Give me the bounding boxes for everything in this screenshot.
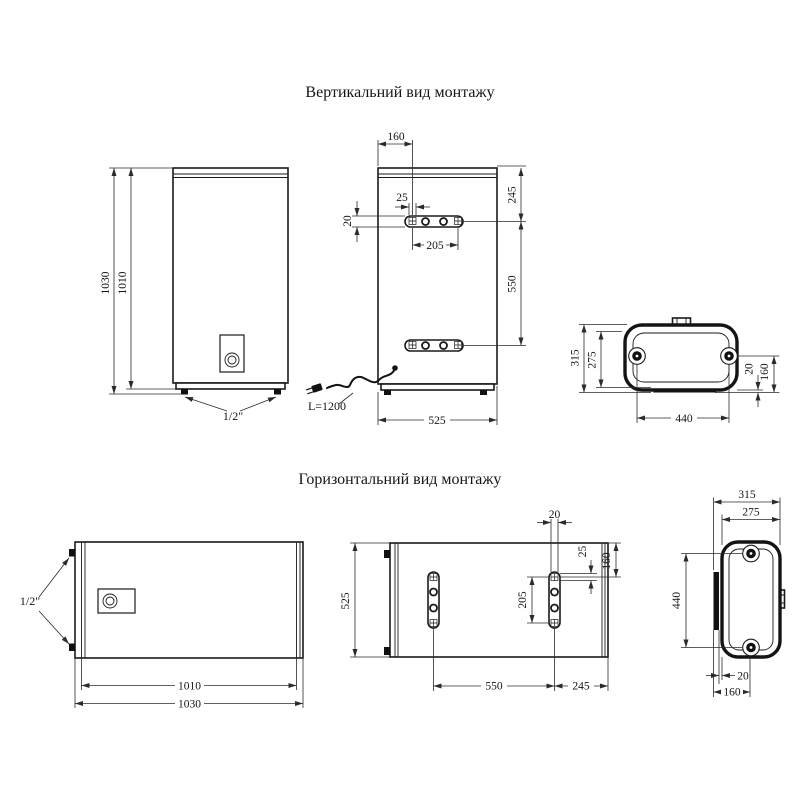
boiler-mounting-drawing: Вертикальний вид монтажу Горизонтальний … (0, 0, 800, 800)
dim-550: 550 (507, 275, 519, 293)
bottom-plate (176, 383, 285, 389)
pipe-nipple-top (69, 549, 75, 557)
dim-160: 160 (759, 363, 771, 381)
dim-315: 315 (570, 349, 582, 367)
left-mounting-bracket (428, 572, 439, 628)
pipe-size-label: 1/2" (223, 409, 243, 423)
tank-body (390, 543, 608, 657)
dim-25: 25 (396, 192, 408, 204)
pipe-size-label: 1/2" (20, 594, 40, 608)
vertical-back-view: L=1200 160 25 20 205 245 (305, 131, 526, 427)
dimension-hole-to-wall: 160 (759, 356, 774, 393)
bottom-plate (381, 384, 494, 390)
dim-160: 160 (723, 687, 741, 699)
horizontal-side-view: 315 275 440 20 160 (671, 489, 785, 699)
plug-icon (305, 383, 322, 395)
upper-mounting-bracket (405, 216, 463, 227)
dim-275: 275 (587, 351, 599, 369)
right-mounting-bracket (549, 572, 560, 628)
dim-1010: 1010 (178, 681, 201, 693)
tank-body (173, 168, 288, 383)
dim-245: 245 (572, 681, 590, 693)
dimension-depth-inner: 275 (722, 507, 780, 546)
vertical-top-view: 315 275 440 20 160 (570, 318, 780, 425)
horizontal-section-title: Горизонтальний вид монтажу (299, 471, 502, 488)
horizontal-front-view: 1/2" 1010 1030 (20, 542, 303, 711)
dim-525: 525 (428, 415, 446, 427)
foot-bottom (384, 647, 390, 655)
dim-1030: 1030 (100, 271, 112, 294)
dimension-height-outer: 1030 (100, 168, 181, 394)
dim-160: 160 (601, 552, 613, 570)
technical-drawing-page: Вертикальний вид монтажу Горизонтальний … (0, 0, 800, 800)
pipe-connection-top (743, 545, 760, 562)
pipe-nipple-left (181, 389, 188, 395)
dim-440: 440 (671, 592, 683, 610)
pipe-size-callout: 1/2" (20, 558, 69, 644)
dim-275: 275 (742, 507, 760, 519)
dim-440: 440 (675, 413, 693, 425)
pipe-size-callout: 1/2" (185, 397, 276, 423)
wall-bracket-edge (714, 572, 720, 630)
dimension-bracket-to-edge: 245 (555, 681, 609, 693)
pipe-nipple-bottom (69, 644, 75, 652)
dim-20: 20 (342, 215, 354, 227)
dim-20: 20 (549, 509, 561, 521)
dimension-width-inner: 1010 (82, 658, 297, 693)
dim-1030: 1030 (178, 699, 201, 711)
dimension-body-width: 525 (378, 386, 497, 427)
dimension-bracket-spacing: 550 (507, 222, 522, 346)
pipe-nipple-right (274, 389, 281, 395)
pipe-connection-right (721, 348, 738, 365)
dim-315: 315 (738, 489, 756, 501)
dimension-body-height: 525 (340, 543, 390, 657)
dim-25: 25 (577, 546, 589, 558)
foot-right (480, 390, 487, 395)
dim-550: 550 (485, 681, 503, 693)
dim-245: 245 (507, 186, 519, 204)
foot-top (384, 550, 390, 558)
cord-length-label: L=1200 (308, 399, 346, 413)
vertical-section-title: Вертикальний вид монтажу (305, 84, 494, 101)
dim-20: 20 (744, 363, 756, 375)
dim-160: 160 (387, 131, 405, 143)
pipe-connection-left (629, 348, 646, 365)
dimension-height-inner: 1010 (117, 168, 176, 389)
dim-525: 525 (340, 592, 352, 610)
vertical-front-view: 1030 1010 1/2" (100, 168, 288, 423)
dim-205: 205 (517, 591, 529, 609)
dim-1010: 1010 (117, 271, 129, 294)
horizontal-back-view: 525 20 25 160 205 550 (340, 509, 621, 693)
lower-mounting-bracket (405, 340, 463, 351)
dim-20: 20 (737, 671, 749, 683)
pipe-connection-bottom (743, 639, 760, 656)
dim-205: 205 (426, 240, 444, 252)
tank-body (75, 542, 303, 658)
foot-left (384, 390, 391, 395)
